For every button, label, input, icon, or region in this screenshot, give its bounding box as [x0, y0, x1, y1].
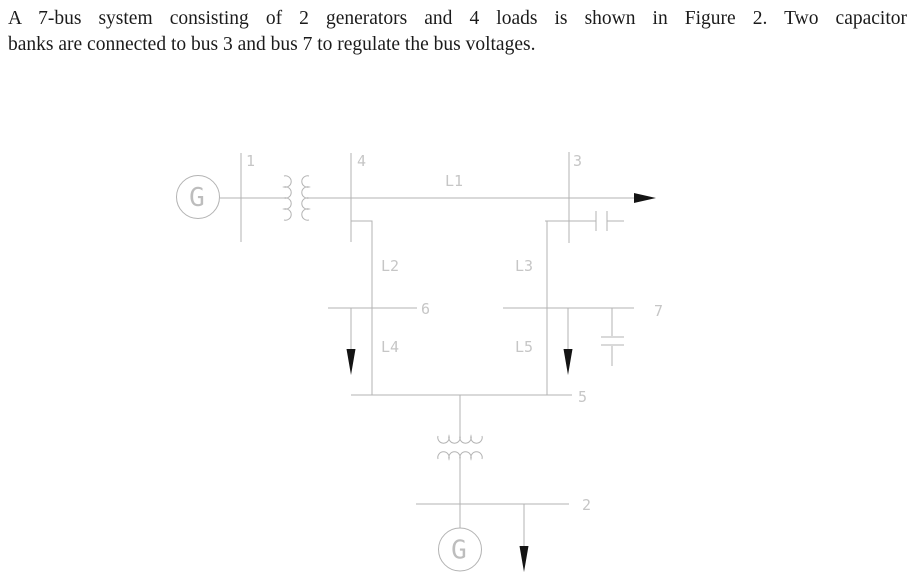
- line-l2-label: L2: [381, 257, 399, 275]
- bus-6: 6: [328, 300, 430, 375]
- transformer-1-left-winding: [284, 176, 291, 220]
- bus-1: 1: [241, 152, 255, 242]
- bus-4: 4: [351, 152, 366, 242]
- bus-2-load-arrow-icon: [520, 546, 529, 572]
- bus-1-label: 1: [246, 152, 255, 170]
- bus-5-label: 5: [578, 388, 587, 406]
- capacitor-bank-bus-3: [545, 211, 624, 231]
- generator-1-letter: G: [189, 183, 205, 213]
- line-l1: L1: [309, 172, 656, 203]
- line-l1-flow-arrow-icon: [634, 193, 656, 203]
- line-l5-label: L5: [515, 338, 533, 356]
- bus-7-load-arrow-icon: [564, 349, 573, 375]
- bus-5: 5: [351, 388, 587, 406]
- line-l4-label: L4: [381, 338, 399, 356]
- generator-1: G: [177, 176, 285, 219]
- line-l1-label: L1: [445, 172, 463, 190]
- transformer-2-top-winding: [438, 436, 482, 443]
- capacitor-bank-bus-7: [601, 308, 624, 366]
- generator-2: G: [439, 504, 482, 571]
- transformer-2: [438, 395, 482, 504]
- bus-7-label: 7: [654, 302, 663, 320]
- transformer-2-bottom-winding: [438, 452, 482, 459]
- bus-4-label: 4: [357, 152, 366, 170]
- generator-2-letter: G: [451, 536, 467, 566]
- bus-6-label: 6: [421, 300, 430, 318]
- bus-2: 2: [416, 496, 591, 572]
- bus-3-label: 3: [573, 152, 582, 170]
- transformer-1-right-winding: [302, 176, 309, 220]
- bus-2-label: 2: [582, 496, 591, 514]
- figure-one-line-diagram: G 1 L1 4 L2 L4: [0, 0, 917, 581]
- page: A 7-bus system consisting of 2 generator…: [0, 0, 917, 581]
- line-l3-label: L3: [515, 257, 533, 275]
- bus-6-load-arrow-icon: [347, 349, 356, 375]
- transformer-1: [284, 176, 309, 220]
